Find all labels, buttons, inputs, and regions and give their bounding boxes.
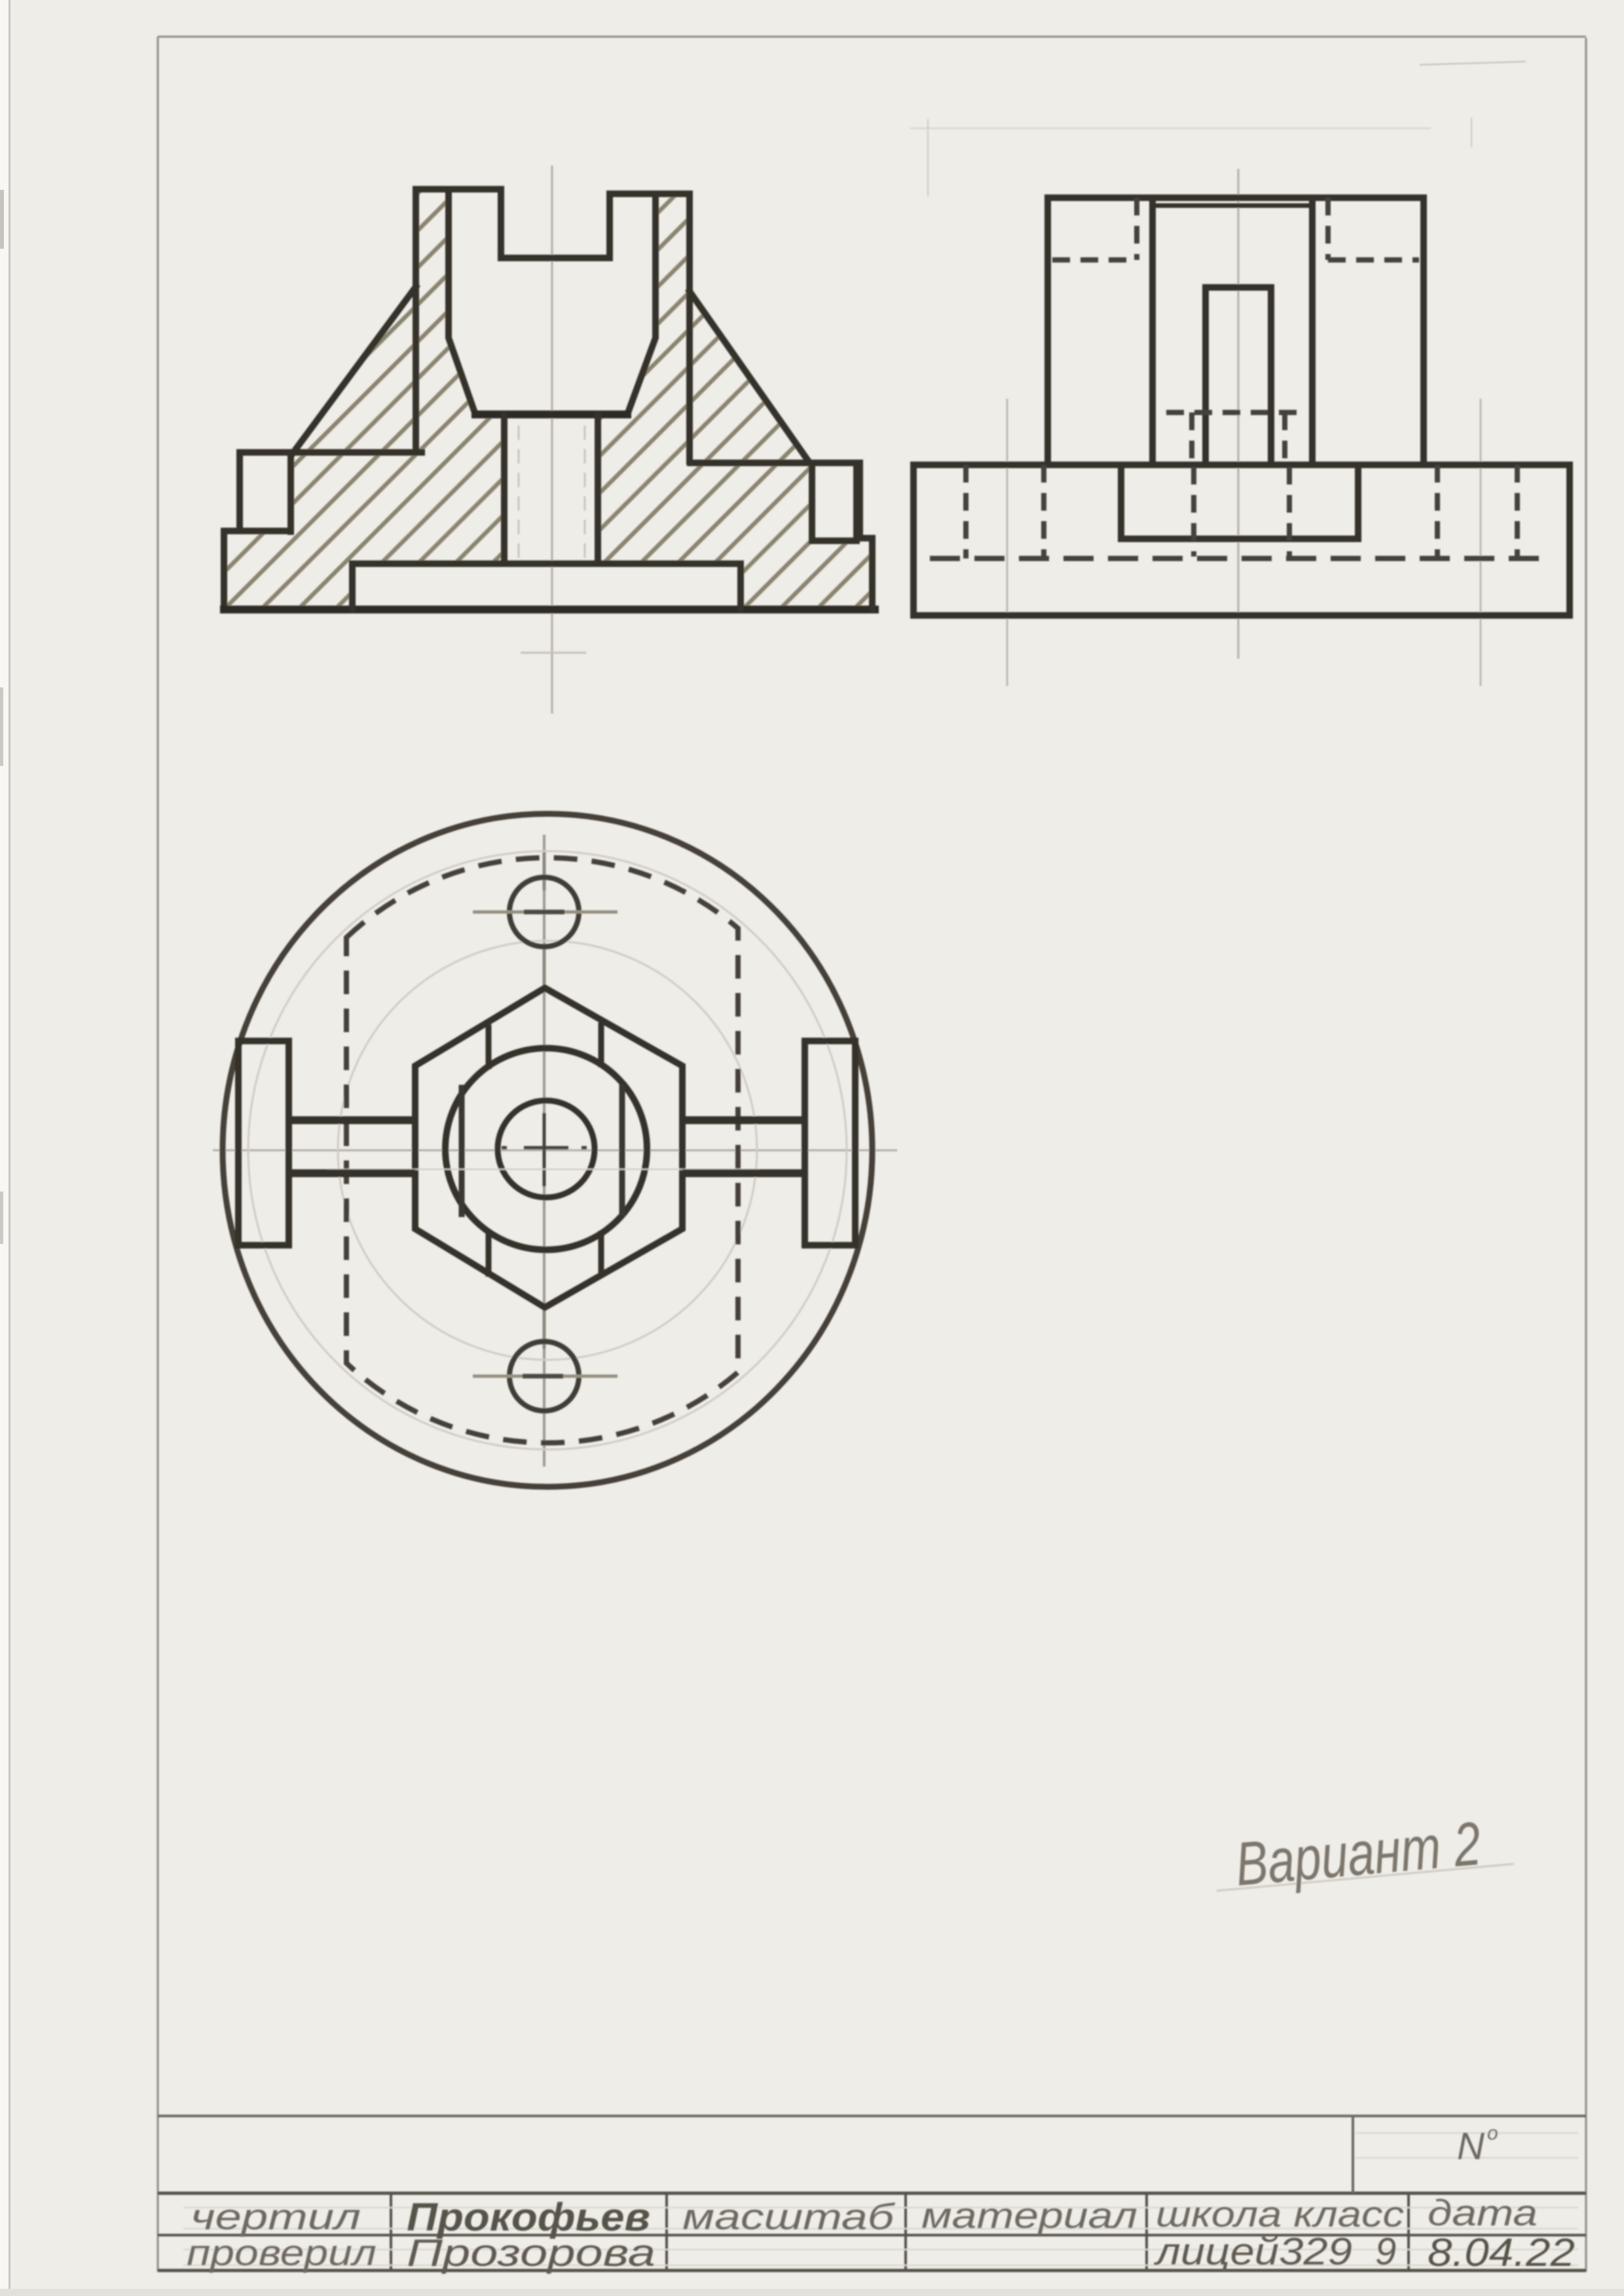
svg-text:дата: дата (1428, 2192, 1538, 2233)
svg-text:школа класс: школа класс (1156, 2193, 1404, 2234)
svg-text:Прозорова: Прозорова (407, 2232, 655, 2274)
svg-text:лицей329: лицей329 (1154, 2231, 1352, 2273)
svg-text:o: o (1487, 2123, 1498, 2144)
svg-text:проверил: проверил (187, 2232, 377, 2273)
svg-text:материал: материал (921, 2195, 1137, 2236)
svg-text:9: 9 (1375, 2231, 1396, 2273)
svg-text:масштаб: масштаб (682, 2196, 896, 2237)
svg-text:N: N (1457, 2125, 1485, 2168)
svg-text:чертил: чертил (191, 2196, 361, 2237)
svg-text:8.04.22: 8.04.22 (1428, 2231, 1575, 2274)
